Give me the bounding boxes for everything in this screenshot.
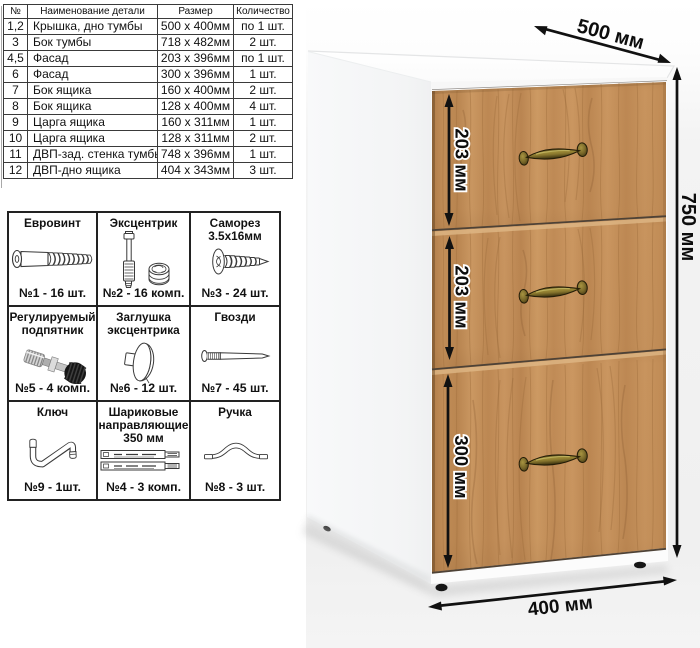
svg-text:203 мм: 203 мм xyxy=(452,128,473,191)
svg-text:203 мм: 203 мм xyxy=(452,265,473,328)
svg-text:750 мм: 750 мм xyxy=(677,193,699,262)
svg-text:300 мм: 300 мм xyxy=(451,435,472,498)
